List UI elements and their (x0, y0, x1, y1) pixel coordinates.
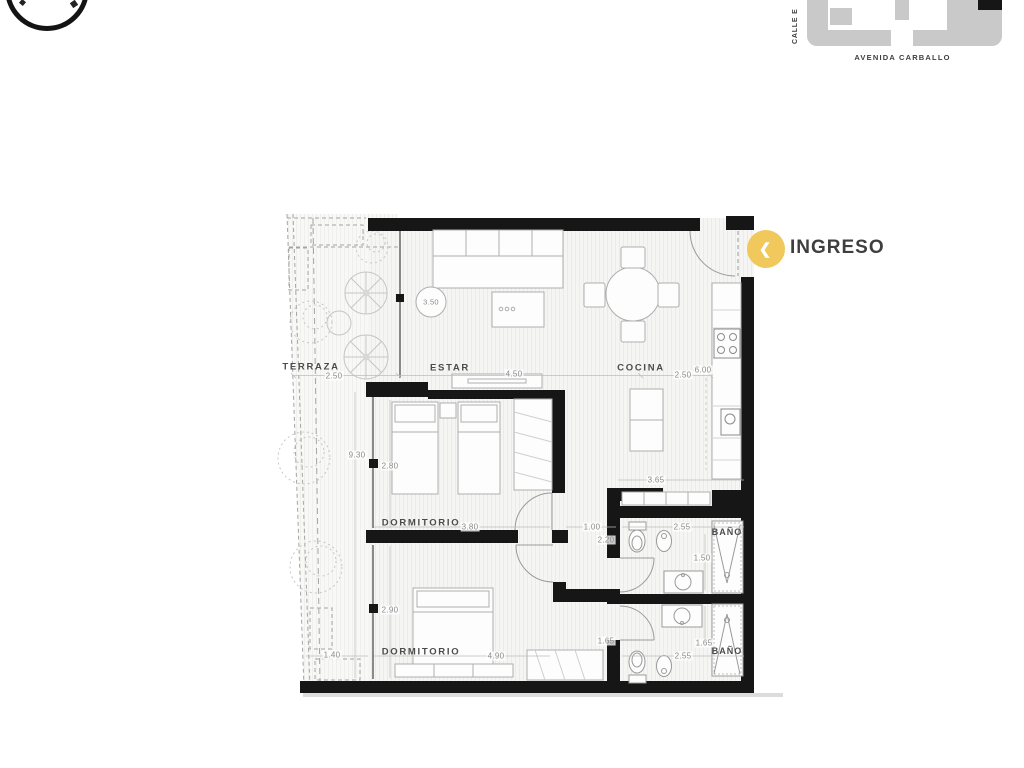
entry-label: INGRESO (790, 237, 885, 259)
terraza-width-dim: 2.50 (325, 372, 344, 381)
floorplan-drawing (0, 0, 1024, 768)
dorm1-furniture (392, 399, 552, 494)
dormitorio1-label: DORMITORIO (382, 518, 461, 529)
estar-label: ESTAR (430, 363, 470, 374)
bano2-depth-dim: 1.65 (695, 639, 714, 648)
cocina-width-dim: 2.50 (674, 371, 693, 380)
cocina-counter-dim: 3.65 (647, 476, 666, 485)
dorm2-width-dim: 4.90 (487, 652, 506, 661)
bano2-label: BAÑO (712, 646, 743, 656)
cocina-label: COCINA (617, 363, 665, 374)
bath2-fixtures (629, 604, 743, 683)
bano2-width-dim: 2.55 (674, 652, 693, 661)
dormitorio2-label: DORMITORIO (382, 647, 461, 658)
entry-marker: ❮ (747, 230, 785, 268)
cocina-furniture (584, 247, 741, 505)
dorm1-depth-dim: 2.80 (381, 462, 400, 471)
dorm2-depth-dim: 2.90 (381, 606, 400, 615)
hall-passage-dim: 1.65 (597, 637, 616, 646)
terraza-length-dim: 9.30 (348, 451, 367, 460)
terraza-end-width-dim: 1.40 (323, 651, 342, 660)
hall-length-dim: 2.20 (597, 536, 616, 545)
floorplan-page: CALLE E AVENIDA CARBALLO (0, 0, 1024, 768)
ceiling-height-dim: 3.50 (422, 298, 440, 307)
chevron-left-icon: ❮ (759, 242, 772, 257)
cocina-length-dim: 6.00 (694, 366, 713, 375)
estar-width-dim: 4.50 (505, 370, 524, 379)
dorm1-width-dim: 3.80 (461, 523, 480, 532)
bano1-label: BAÑO (712, 527, 743, 537)
bano1-depth-dim: 1.50 (693, 554, 712, 563)
bano1-width-dim: 2.55 (673, 523, 692, 532)
hall-width-dim: 1.00 (583, 523, 602, 532)
terrace-boundary (287, 214, 398, 688)
